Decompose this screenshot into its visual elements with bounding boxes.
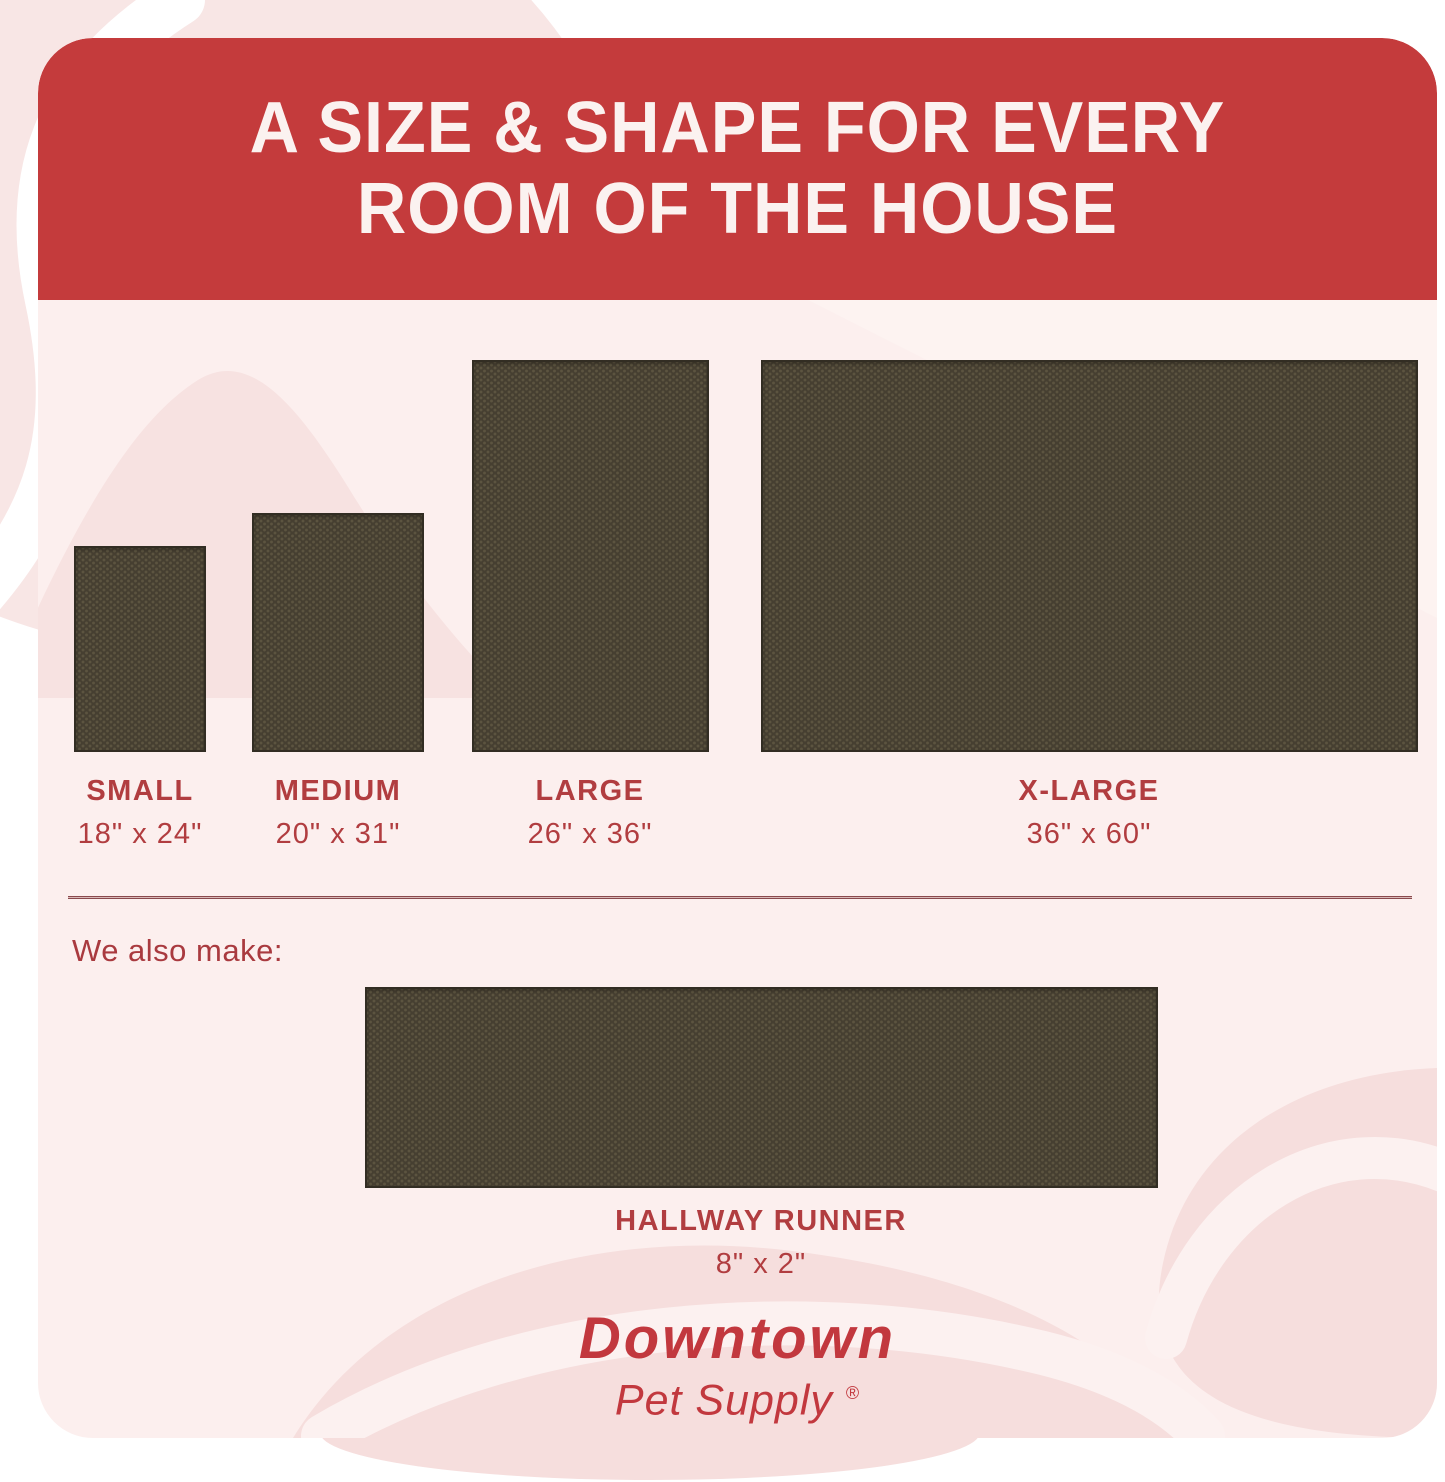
size-label-large: LARGE 26" x 36"	[440, 775, 740, 851]
mat-swatch-small	[74, 546, 206, 752]
header-banner: A SIZE & SHAPE FOR EVERY ROOM OF THE HOU…	[38, 38, 1437, 300]
size-dimensions: 26" x 36"	[440, 818, 740, 851]
size-label-hallway-runner: HALLWAY RUNNER 8" x 2"	[561, 1205, 961, 1281]
divider-line	[68, 896, 1412, 899]
brand-name: Downtown	[38, 1310, 1437, 1368]
size-dimensions: 8" x 2"	[561, 1248, 961, 1281]
size-dimensions: 36" x 60"	[939, 818, 1239, 851]
also-make-label: We also make:	[72, 933, 283, 969]
mat-swatch-hallway-runner	[365, 987, 1158, 1188]
title-line-2: ROOM OF THE HOUSE	[250, 169, 1226, 250]
content-card: A SIZE & SHAPE FOR EVERY ROOM OF THE HOU…	[38, 38, 1437, 1438]
size-name: LARGE	[440, 775, 740, 808]
size-label-xlarge: X-LARGE 36" x 60"	[939, 775, 1239, 851]
size-guide-infographic: A SIZE & SHAPE FOR EVERY ROOM OF THE HOU…	[0, 0, 1445, 1482]
size-name: HALLWAY RUNNER	[561, 1205, 961, 1238]
title-line-1: A SIZE & SHAPE FOR EVERY	[250, 88, 1226, 169]
mat-swatch-xlarge	[761, 360, 1418, 752]
registered-mark: ®	[846, 1383, 860, 1403]
mat-swatch-medium	[252, 513, 424, 752]
size-name: X-LARGE	[939, 775, 1239, 808]
brand-tagline: Pet Supply ®	[38, 1368, 1437, 1425]
brand-logo: Downtown Pet Supply ®	[38, 1310, 1437, 1425]
brand-tagline-text: Pet Supply	[615, 1376, 833, 1424]
mat-swatch-large	[472, 360, 709, 752]
page-title: A SIZE & SHAPE FOR EVERY ROOM OF THE HOU…	[250, 88, 1226, 249]
